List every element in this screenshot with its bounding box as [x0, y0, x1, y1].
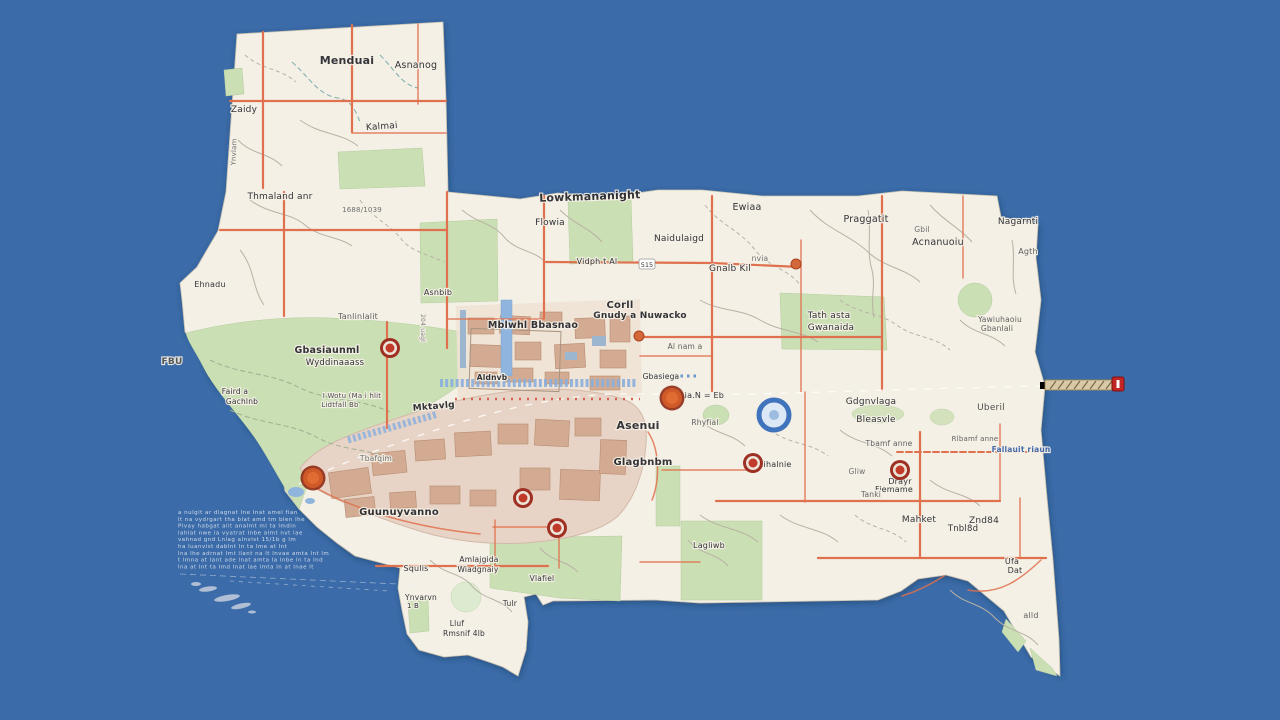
map-label: Praggatit — [843, 214, 888, 225]
map-label: Thmaland anr — [246, 192, 312, 202]
watermark-line: a nulgit ar dlagnat lne Inat amel fian — [178, 510, 298, 516]
map-label: Yawiuhaoiu — [977, 315, 1022, 324]
map-label: Ewiaa — [732, 202, 761, 213]
watermark-line: t lmna at lant ade lnat amta la lnbe ln … — [178, 558, 323, 564]
map-label: Tbamf anne — [865, 439, 913, 448]
watermark-line: ha luanvist dablnt ln ta lme at lnt — [178, 544, 288, 550]
watermark-line: lahlat nwe ia vyatrat Inbe almt nvt lae — [178, 530, 303, 536]
map-label: Ufa — [1005, 557, 1019, 566]
map-label: Guunuyvanno — [359, 507, 439, 518]
watermark-line: lna at lnt ta lmd lnat lae lmta ln at ln… — [178, 564, 314, 570]
map-label: Naidulaigd — [654, 234, 704, 244]
map-label: Asnbib — [424, 288, 452, 297]
map-label: I Wotu (Ma i hlit — [323, 392, 381, 400]
map-label: Agth — [1018, 247, 1038, 256]
map-label: Rmsnif 4lb — [443, 629, 485, 638]
shield-marker[interactable] — [547, 518, 567, 538]
big-marker[interactable] — [301, 466, 326, 491]
watermark-line: vahnad gnd Lnlag alnvist 15/1b g lm — [178, 537, 296, 543]
map-label: Dat — [1008, 566, 1023, 575]
map-label: Zaidy — [231, 105, 258, 115]
map-label: Mahket — [902, 515, 936, 525]
roundabout — [759, 400, 789, 430]
map-label: Vidph t Al — [577, 257, 618, 266]
map-label: Tath asta — [807, 311, 851, 321]
map-label: Acnanuoiu — [912, 237, 964, 248]
shield-marker[interactable] — [890, 460, 910, 480]
map-label: Al nam a — [668, 342, 703, 351]
map-label: Flowia — [535, 218, 565, 228]
shield-marker[interactable] — [743, 453, 763, 473]
map-label: 1 B — [407, 602, 419, 610]
map-label: Tanki — [860, 490, 881, 499]
map-label: Tbafqim — [359, 454, 392, 463]
map-label: Uberil — [977, 403, 1005, 413]
map-label: Mblwhl Bbasnao — [488, 320, 578, 331]
map-label: Gbasiaunml — [294, 345, 359, 356]
map-label: Lluf — [450, 619, 465, 628]
map-label: Faird a — [222, 387, 248, 396]
route-shield: 515 — [639, 259, 655, 269]
map-label: Ynvlam — [229, 138, 238, 166]
shield-marker[interactable] — [380, 338, 400, 358]
map-canvas[interactable]: a nulgit ar dlagnat lne Inat amel fianlt… — [0, 0, 1280, 720]
map-label: Gachlnb — [226, 397, 258, 406]
map-label: Rlbamf anne — [952, 435, 999, 443]
map-label: Gbil — [914, 225, 930, 234]
map-label: FBU — [162, 357, 183, 367]
map-label: Wiadgnaiy — [457, 565, 498, 574]
map-label: Gbanlali — [981, 324, 1013, 333]
map-label: alld — [1023, 611, 1038, 620]
map-label: 1688/1039 — [342, 206, 382, 214]
dot-marker[interactable] — [634, 331, 644, 341]
map-label: Rhyfial — [691, 418, 718, 427]
map-label: Wyddinaaass — [306, 358, 365, 368]
dot-marker[interactable] — [791, 259, 801, 269]
map-label: Vlafiel — [530, 574, 555, 583]
map-label: Gdgnvlaga — [846, 397, 896, 407]
watermark-line: Plvay habgat alit analmt ml ta lmdin — [178, 524, 296, 530]
watermark-line: lna lhe adrnat lmt ilant na lt lnvae amt… — [178, 551, 329, 557]
map-label: Ehnadu — [194, 280, 225, 289]
map-label: Lagliwb — [693, 541, 725, 550]
map-label: Nagarnti — [998, 217, 1038, 227]
map-label: Gbasiega — [643, 372, 680, 381]
map-label: Glagbnbm — [614, 457, 673, 468]
map-label: Tulr — [502, 599, 518, 608]
map-label: Lia.N = Eb — [680, 391, 724, 400]
shield-marker[interactable] — [513, 488, 533, 508]
map-label: Aldnvb — [477, 373, 508, 382]
map-label: Bleasvle — [856, 415, 896, 425]
map-label: Ynvarvn — [404, 593, 437, 602]
watermark-line: lt na vydrgart tha blat amd tm blen lhe — [178, 517, 305, 523]
route-shield-number: 515 — [641, 261, 653, 269]
map-label: Amlajgida — [459, 555, 498, 564]
map-label: Gliw — [849, 467, 866, 476]
map-label: 204 uagl — [419, 314, 426, 342]
big-marker[interactable] — [660, 386, 685, 411]
map-label: Tnbl8d — [947, 524, 978, 534]
map-label: Corll — [607, 300, 634, 311]
map-label: Lidtfall Bb — [321, 401, 359, 409]
map-label: Gwanaida — [808, 323, 854, 333]
pier — [1040, 380, 1121, 390]
map-label: nvia — [752, 254, 769, 263]
map-label: Menduai — [320, 54, 375, 67]
map-label: Asnanog — [395, 60, 438, 71]
map-label: Asenui — [616, 419, 659, 432]
map-label: Tanlinlalit — [337, 312, 378, 321]
map-label: Squlis — [403, 564, 428, 573]
flag-marker[interactable] — [1112, 377, 1124, 391]
map-image: a nulgit ar dlagnat lne Inat amel fianlt… — [0, 0, 1280, 720]
map-label: Gnudy a Nuwacko — [593, 311, 686, 321]
map-label: Fallauit riaun — [992, 445, 1051, 454]
map-label: Gnalb Kil — [709, 264, 751, 274]
